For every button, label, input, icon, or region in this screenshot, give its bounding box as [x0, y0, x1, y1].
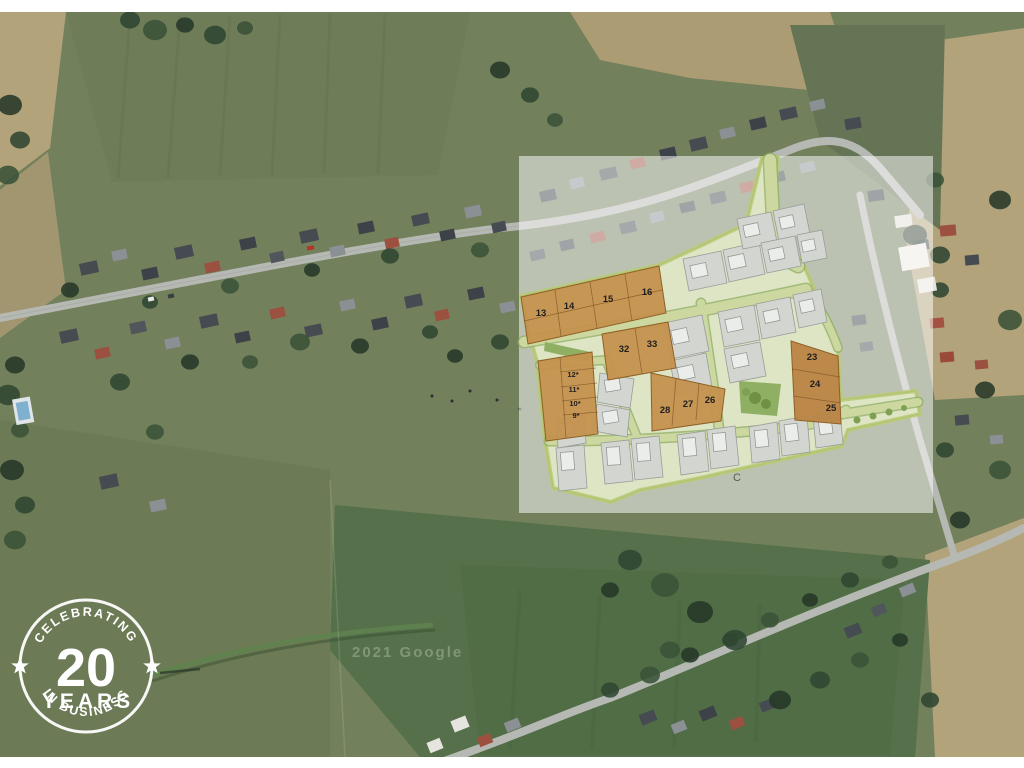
- lot-label-33: 33: [647, 339, 658, 350]
- lot-label-12: 12*: [567, 370, 578, 379]
- lot-label-15: 15: [603, 294, 614, 305]
- lot-label-16: 16: [642, 287, 653, 298]
- lot-label-25: 25: [826, 403, 837, 414]
- listing-image: 2021 Google: [0, 0, 1024, 768]
- lot-label-27: 27: [683, 399, 694, 410]
- lot-label-9: 9*: [572, 411, 579, 420]
- lot-label-26: 26: [705, 395, 716, 406]
- anniversary-badge: CELEBRATING 20 YEARS IN BUSINESS: [6, 586, 166, 746]
- lot-label-10: 10*: [569, 399, 580, 408]
- lot-label-13: 13: [536, 308, 547, 319]
- lot-label-23: 23: [807, 352, 818, 363]
- lot-label-28: 28: [660, 405, 671, 416]
- lot-label-11: 11*: [569, 385, 580, 394]
- lot-group-9-12: [538, 352, 598, 441]
- area-label-c: C: [733, 472, 741, 484]
- lot-label-14: 14: [564, 301, 575, 312]
- badge-number: 20: [56, 638, 116, 698]
- lot-label-32: 32: [619, 344, 630, 355]
- lot-label-24: 24: [810, 379, 821, 390]
